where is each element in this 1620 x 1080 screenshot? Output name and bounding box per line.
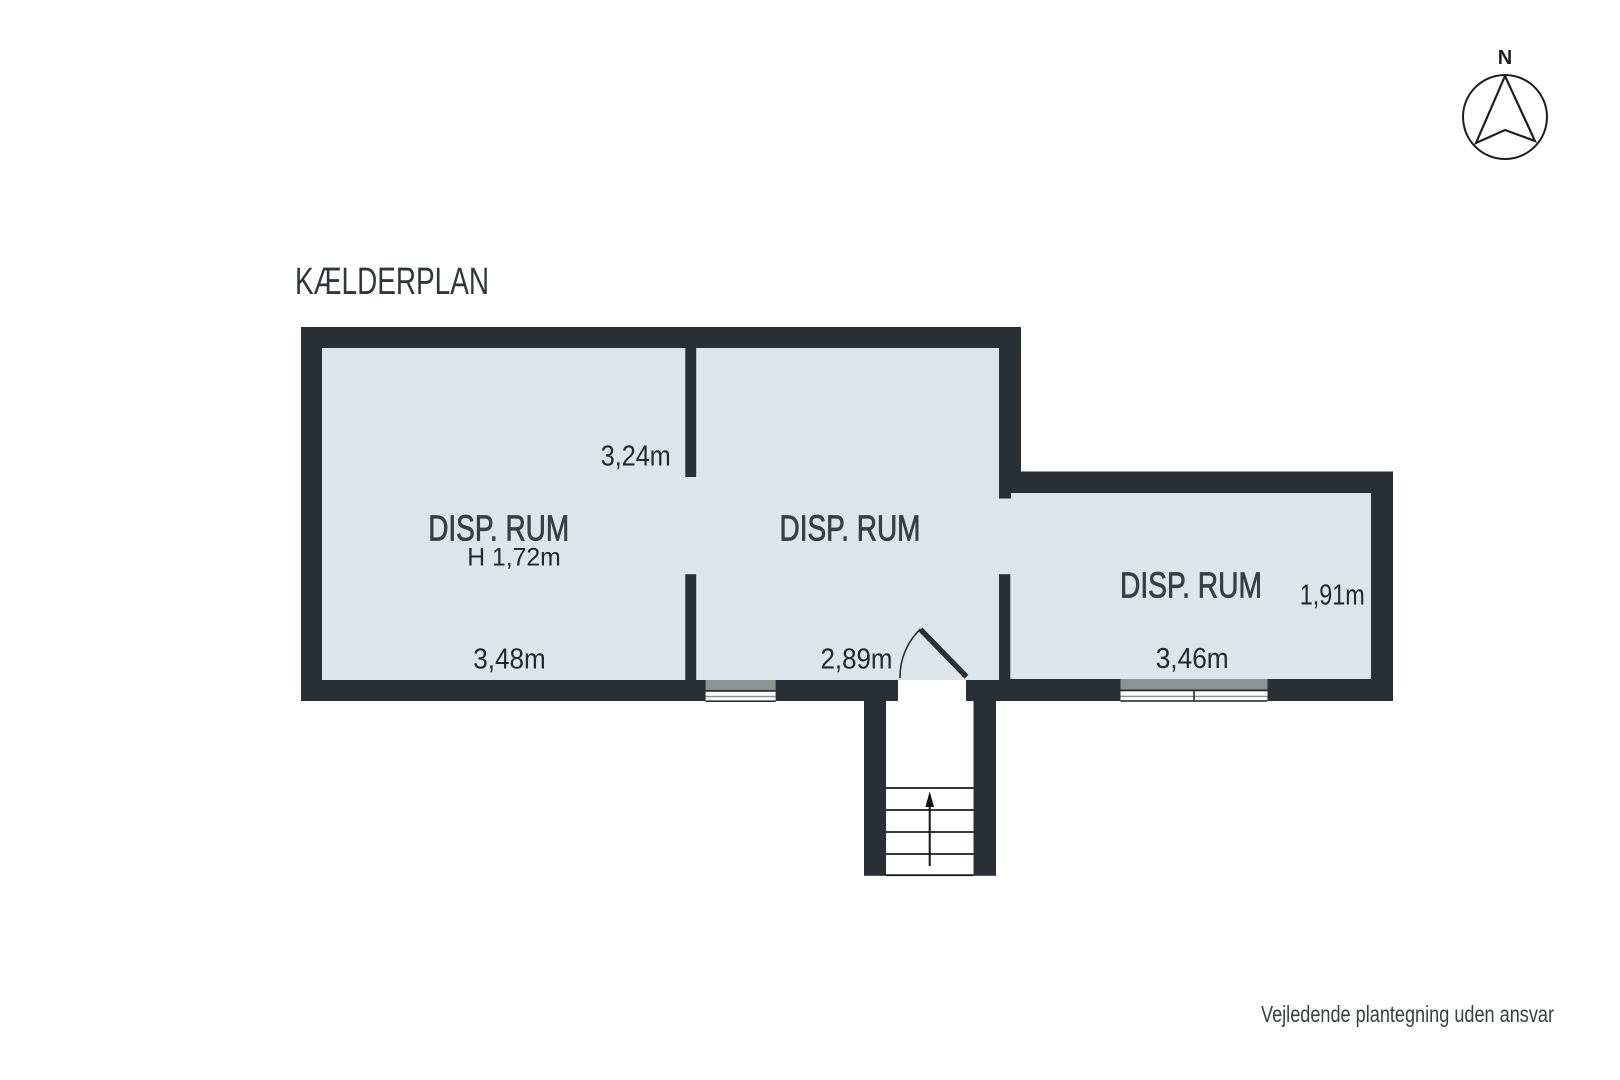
svg-text:2,89m: 2,89m: [821, 644, 893, 676]
svg-text:DISP. RUM: DISP. RUM: [1120, 564, 1262, 605]
svg-text:KÆLDERPLAN: KÆLDERPLAN: [295, 261, 489, 303]
svg-text:DISP. RUM: DISP. RUM: [780, 508, 921, 549]
svg-text:Vejledende plantegning uden an: Vejledende plantegning uden ansvar: [1261, 1001, 1554, 1027]
svg-text:3,48m: 3,48m: [473, 643, 546, 675]
svg-text:3,46m: 3,46m: [1156, 643, 1229, 675]
svg-text:1,91m: 1,91m: [1300, 580, 1365, 612]
svg-text:N: N: [1498, 47, 1512, 69]
svg-text:H 1,72m: H 1,72m: [467, 544, 561, 572]
svg-text:3,24m: 3,24m: [601, 441, 671, 473]
